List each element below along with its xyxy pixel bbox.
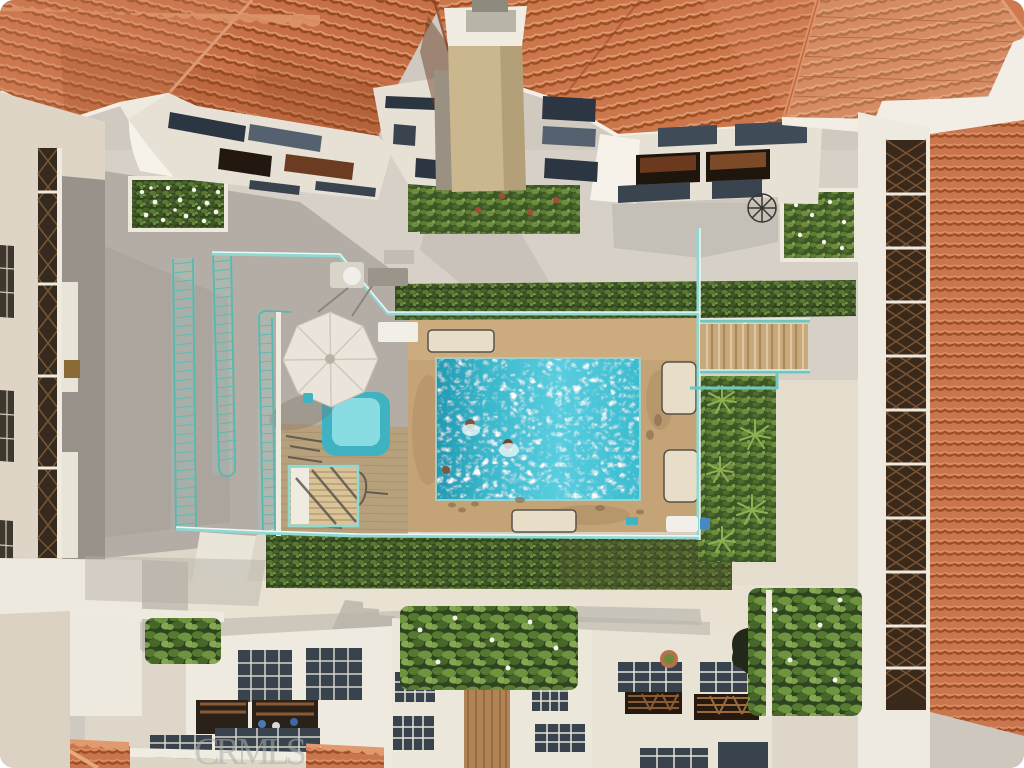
svg-text:CRMLS: CRMLS <box>194 731 305 768</box>
